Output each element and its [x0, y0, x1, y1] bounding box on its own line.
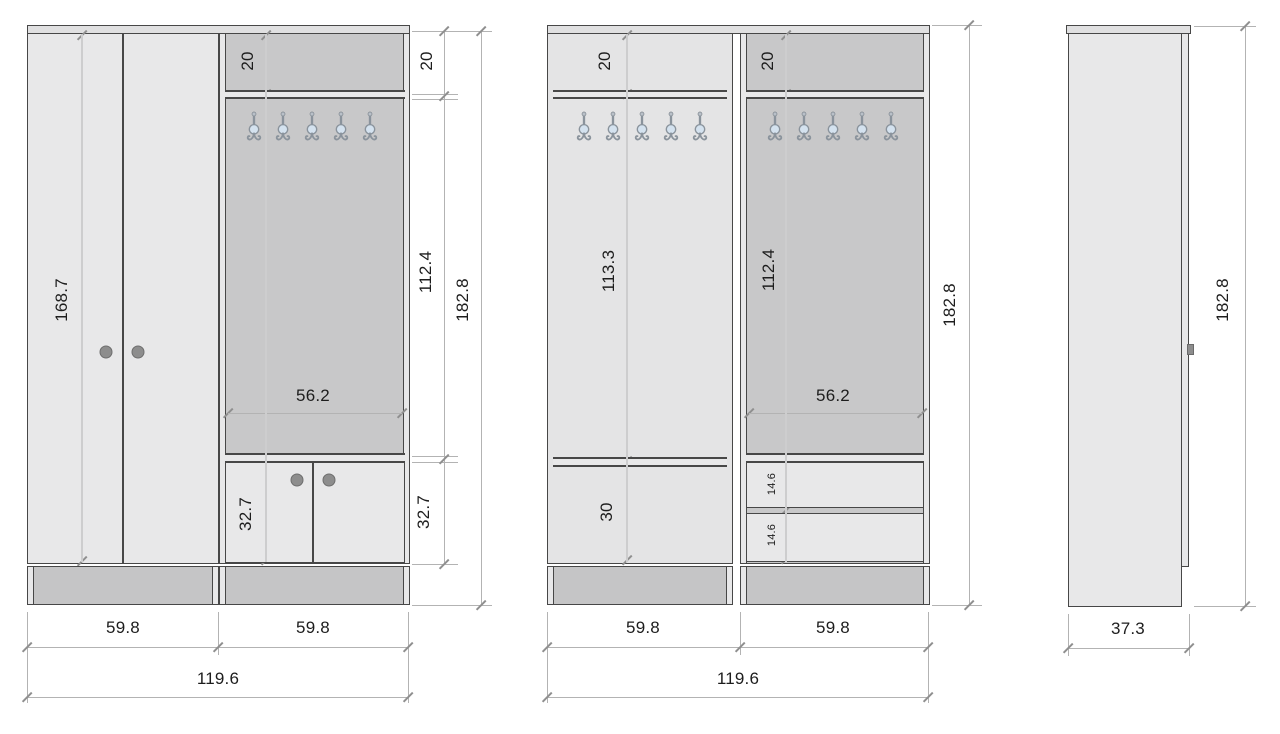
extension-line: [218, 612, 219, 655]
dim-label-door-height: 168.7: [52, 278, 72, 322]
dim-label-drawer2: 14.6: [766, 524, 778, 546]
extension-line: [408, 612, 409, 703]
plinth-leg: [212, 566, 219, 605]
dimension-line: [547, 697, 929, 698]
coat-hook-icon: [662, 109, 680, 146]
coat-hook-icon: [853, 109, 871, 146]
cabinet-top-board: [225, 453, 405, 463]
extension-line: [1189, 614, 1190, 656]
side-panel: [923, 33, 930, 564]
door-knob: [291, 474, 304, 487]
coat-hooks-row: [575, 109, 709, 146]
dimension-line: [1068, 648, 1190, 649]
coat-hooks-row: [766, 109, 900, 146]
dim-label-width-left: 59.8: [106, 618, 140, 638]
door-gap: [122, 33, 124, 564]
extension-line: [1068, 614, 1069, 656]
extension-line: [27, 612, 28, 703]
plinth-leg: [219, 566, 226, 605]
dimension-line: [1245, 26, 1246, 606]
coat-hook-icon: [795, 109, 813, 146]
dim-label-total-height: 182.8: [1213, 278, 1233, 322]
coat-hook-icon: [303, 109, 321, 146]
coat-hooks-row: [245, 109, 379, 146]
cabinet-door-gap: [312, 463, 314, 562]
door-knob: [323, 474, 336, 487]
coat-hook-icon: [604, 109, 622, 146]
coat-hook-icon: [882, 109, 900, 146]
extension-line: [928, 612, 929, 703]
plinth: [219, 566, 410, 605]
dim-label-top-shelf: 20: [595, 51, 615, 70]
coat-hook-icon: [274, 109, 292, 146]
extension-line: [412, 564, 458, 565]
dimension-line: [481, 31, 482, 605]
coat-hook-icon: [766, 109, 784, 146]
dimension-line: [27, 697, 409, 698]
dim-label-lower-compartment: 30: [597, 502, 617, 521]
plinth-leg: [740, 566, 747, 605]
dim-label-width-right: 59.8: [296, 618, 330, 638]
plinth-leg: [726, 566, 733, 605]
dim-label-hook-section: 112.4: [759, 249, 779, 291]
dim-label-width-right: 59.8: [816, 618, 850, 638]
coat-hook-icon: [824, 109, 842, 146]
dimension-line: [228, 413, 402, 414]
dim-label-total-height: 182.8: [940, 283, 960, 327]
dim-label-panel-width: 56.2: [296, 386, 330, 406]
top-shelf: [553, 90, 727, 99]
door-knob: [100, 346, 113, 359]
extension-line: [412, 94, 458, 95]
extension-line: [1194, 26, 1256, 27]
door-knob: [132, 346, 145, 359]
coat-hook-icon: [633, 109, 651, 146]
coat-hook-icon: [691, 109, 709, 146]
extension-line: [547, 612, 548, 703]
extension-line: [932, 605, 982, 606]
top-shelf: [225, 90, 405, 99]
plinth: [27, 566, 219, 605]
extension-line: [412, 99, 458, 100]
door-handle: [1187, 344, 1194, 355]
dim-label-width-left: 59.8: [626, 618, 660, 638]
middle-shelf: [553, 457, 727, 467]
extension-line: [412, 456, 458, 457]
plinth-leg: [923, 566, 930, 605]
extension-line: [412, 462, 458, 463]
dim-label-width-total: 119.6: [717, 669, 759, 689]
dim-label-depth: 37.3: [1111, 619, 1145, 639]
plinth-leg: [547, 566, 554, 605]
coat-hook-icon: [245, 109, 263, 146]
dim-label-chain-top: 20: [417, 51, 437, 70]
extension-line: [1194, 606, 1256, 607]
coat-hook-icon: [361, 109, 379, 146]
coat-hook-icon: [332, 109, 350, 146]
dimension-line: [444, 31, 445, 564]
dim-label-chain-middle: 112.4: [416, 251, 436, 293]
chain-extension-line: [81, 34, 83, 562]
dim-label-chain-bottom: 32.7: [414, 495, 434, 529]
dim-label-total-height: 182.8: [453, 278, 473, 322]
door-edge: [1181, 33, 1189, 567]
side-body: [1068, 33, 1182, 607]
plinth: [740, 566, 930, 605]
extension-line: [740, 612, 741, 655]
extension-line: [932, 25, 982, 26]
dim-label-hook-section: 113.3: [599, 250, 619, 292]
coat-hook-icon: [575, 109, 593, 146]
dimension-line: [969, 25, 970, 605]
plinth: [547, 566, 733, 605]
dim-label-top-shelf: 20: [758, 51, 778, 70]
dimension-line: [749, 413, 922, 414]
top-shelf: [746, 90, 924, 99]
furniture-dimension-drawing: 168.7 20 56.2 32.7 20 112.4 32.7 182.8: [0, 0, 1280, 734]
plinth-leg: [403, 566, 410, 605]
dim-label-cabinet-height: 32.7: [236, 497, 256, 531]
drawer-top-board: [746, 453, 924, 463]
dim-label-panel-width: 56.2: [816, 386, 850, 406]
plinth-leg: [27, 566, 34, 605]
dim-label-width-total: 119.6: [197, 669, 239, 689]
dim-label-drawer1: 14.6: [766, 473, 778, 495]
dim-label-top-shelf: 20: [238, 51, 258, 70]
